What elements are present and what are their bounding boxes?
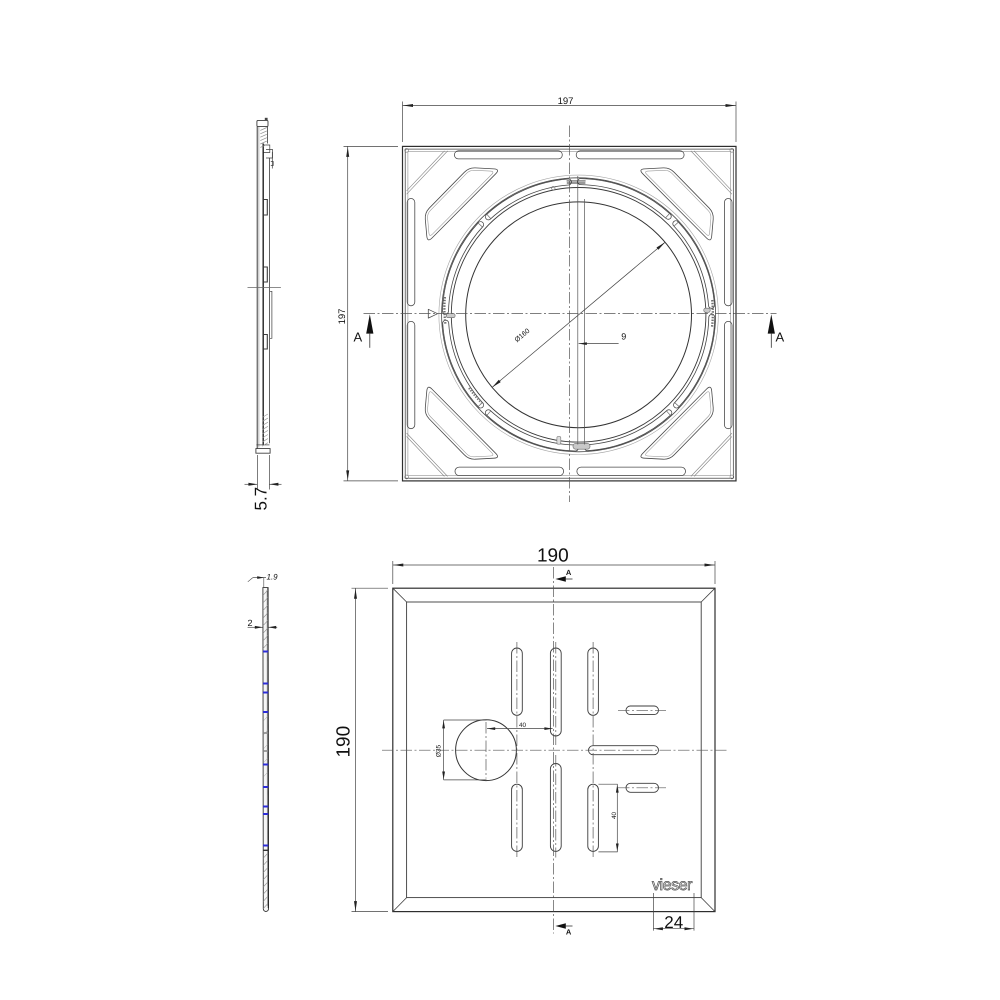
svg-text:A: A bbox=[566, 928, 572, 937]
svg-text:2: 2 bbox=[248, 618, 253, 628]
svg-text:40: 40 bbox=[519, 722, 527, 729]
svg-text:A: A bbox=[354, 330, 363, 345]
svg-text:197: 197 bbox=[337, 309, 348, 325]
svg-text:24: 24 bbox=[664, 913, 683, 932]
svg-text:A: A bbox=[776, 330, 785, 345]
svg-text:5.7: 5.7 bbox=[252, 487, 271, 511]
svg-text:197: 197 bbox=[558, 96, 574, 107]
svg-text:190: 190 bbox=[537, 546, 569, 567]
svg-text:1.9: 1.9 bbox=[267, 573, 279, 582]
svg-text:190: 190 bbox=[334, 726, 355, 758]
svg-text:9: 9 bbox=[621, 332, 626, 342]
svg-text:vieser: vieser bbox=[652, 877, 693, 894]
svg-text:A: A bbox=[566, 568, 572, 577]
svg-text:Ø35: Ø35 bbox=[435, 744, 442, 757]
svg-text:40: 40 bbox=[611, 812, 618, 820]
